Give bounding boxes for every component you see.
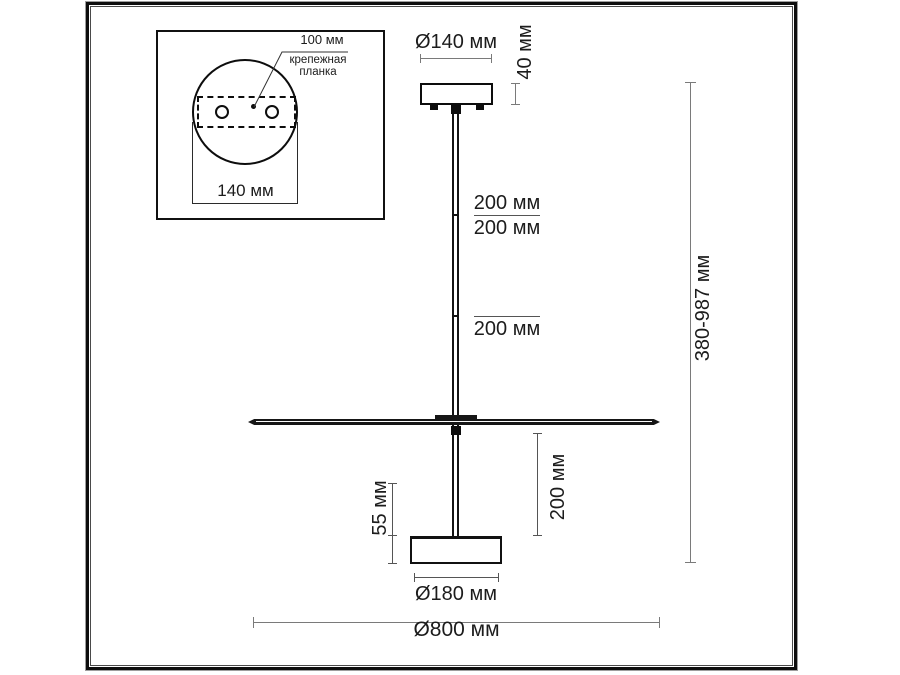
- overall-height-cap-top: [685, 82, 696, 83]
- rod-joint-1: [452, 214, 459, 216]
- head-height-label: 55 мм: [369, 468, 389, 548]
- head-diameter-cap-right: [498, 573, 499, 582]
- plate-width-dim-line: [192, 203, 298, 204]
- rod-segment-2-label: 200 мм: [472, 217, 542, 239]
- plate-width-extension-left: [192, 122, 193, 204]
- hole-spacing-label: 100 мм: [287, 33, 357, 47]
- canopy-foot-left: [430, 105, 438, 110]
- head-height-cap-bottom: [388, 563, 397, 564]
- plate-width-label: 140 мм: [205, 182, 286, 200]
- rod-segment-3-label: 200 мм: [472, 318, 542, 340]
- bracket-label-line1: крепежная: [281, 54, 355, 66]
- head-drop-cap-bottom: [533, 535, 542, 536]
- canopy-height-cap-bottom: [511, 104, 520, 105]
- canopy-dim-cap-right: [491, 54, 492, 63]
- canopy-height-label: 40 мм: [514, 12, 534, 92]
- bracket-label-line2: планка: [281, 66, 355, 78]
- rod-disc-connector: [451, 426, 461, 435]
- lamp-head-cylinder: [410, 536, 502, 564]
- disc-diameter-cap-right: [659, 617, 660, 628]
- plate-width-extension-right: [297, 122, 298, 204]
- canopy-dim-cap-left: [420, 54, 421, 63]
- head-diameter-label: Ø180 мм: [406, 583, 506, 605]
- rod-segment-shelf-line-2: [474, 316, 540, 317]
- head-drop-label: 200 мм: [547, 442, 567, 532]
- suspension-rod-upper: [452, 114, 459, 426]
- disc-hub-plate: [435, 415, 477, 419]
- suspension-rod-lower: [452, 435, 459, 536]
- rod-segment-1-label: 200 мм: [472, 192, 542, 214]
- head-height-dim-line: [392, 483, 393, 564]
- canopy-foot-right: [476, 105, 484, 110]
- rod-mount-stub: [451, 105, 461, 114]
- rod-joint-2: [452, 315, 459, 317]
- technical-drawing-page: 100 мм крепежная планка 140 мм Ø140 мм 4…: [0, 0, 900, 675]
- disc-highlight-stripe: [256, 421, 652, 422]
- canopy-diameter-dim-line: [420, 58, 492, 59]
- ceiling-canopy: [420, 83, 493, 105]
- disc-diameter-label: Ø800 мм: [396, 619, 517, 641]
- head-diameter-dim-line: [414, 577, 499, 578]
- disc-diameter-cap-left: [253, 617, 254, 628]
- rod-segment-shelf-line-1: [474, 215, 540, 216]
- overall-height-dim-line: [690, 82, 691, 563]
- head-drop-cap-top: [533, 433, 542, 434]
- overall-height-cap-bottom: [685, 562, 696, 563]
- head-diameter-cap-left: [414, 573, 415, 582]
- flat-disc-shade: [248, 419, 660, 425]
- head-drop-dim-line: [537, 433, 538, 536]
- overall-height-label: 380-987 мм: [692, 228, 714, 388]
- bracket-hole-left: [215, 105, 229, 119]
- canopy-diameter-label: Ø140 мм: [406, 31, 506, 53]
